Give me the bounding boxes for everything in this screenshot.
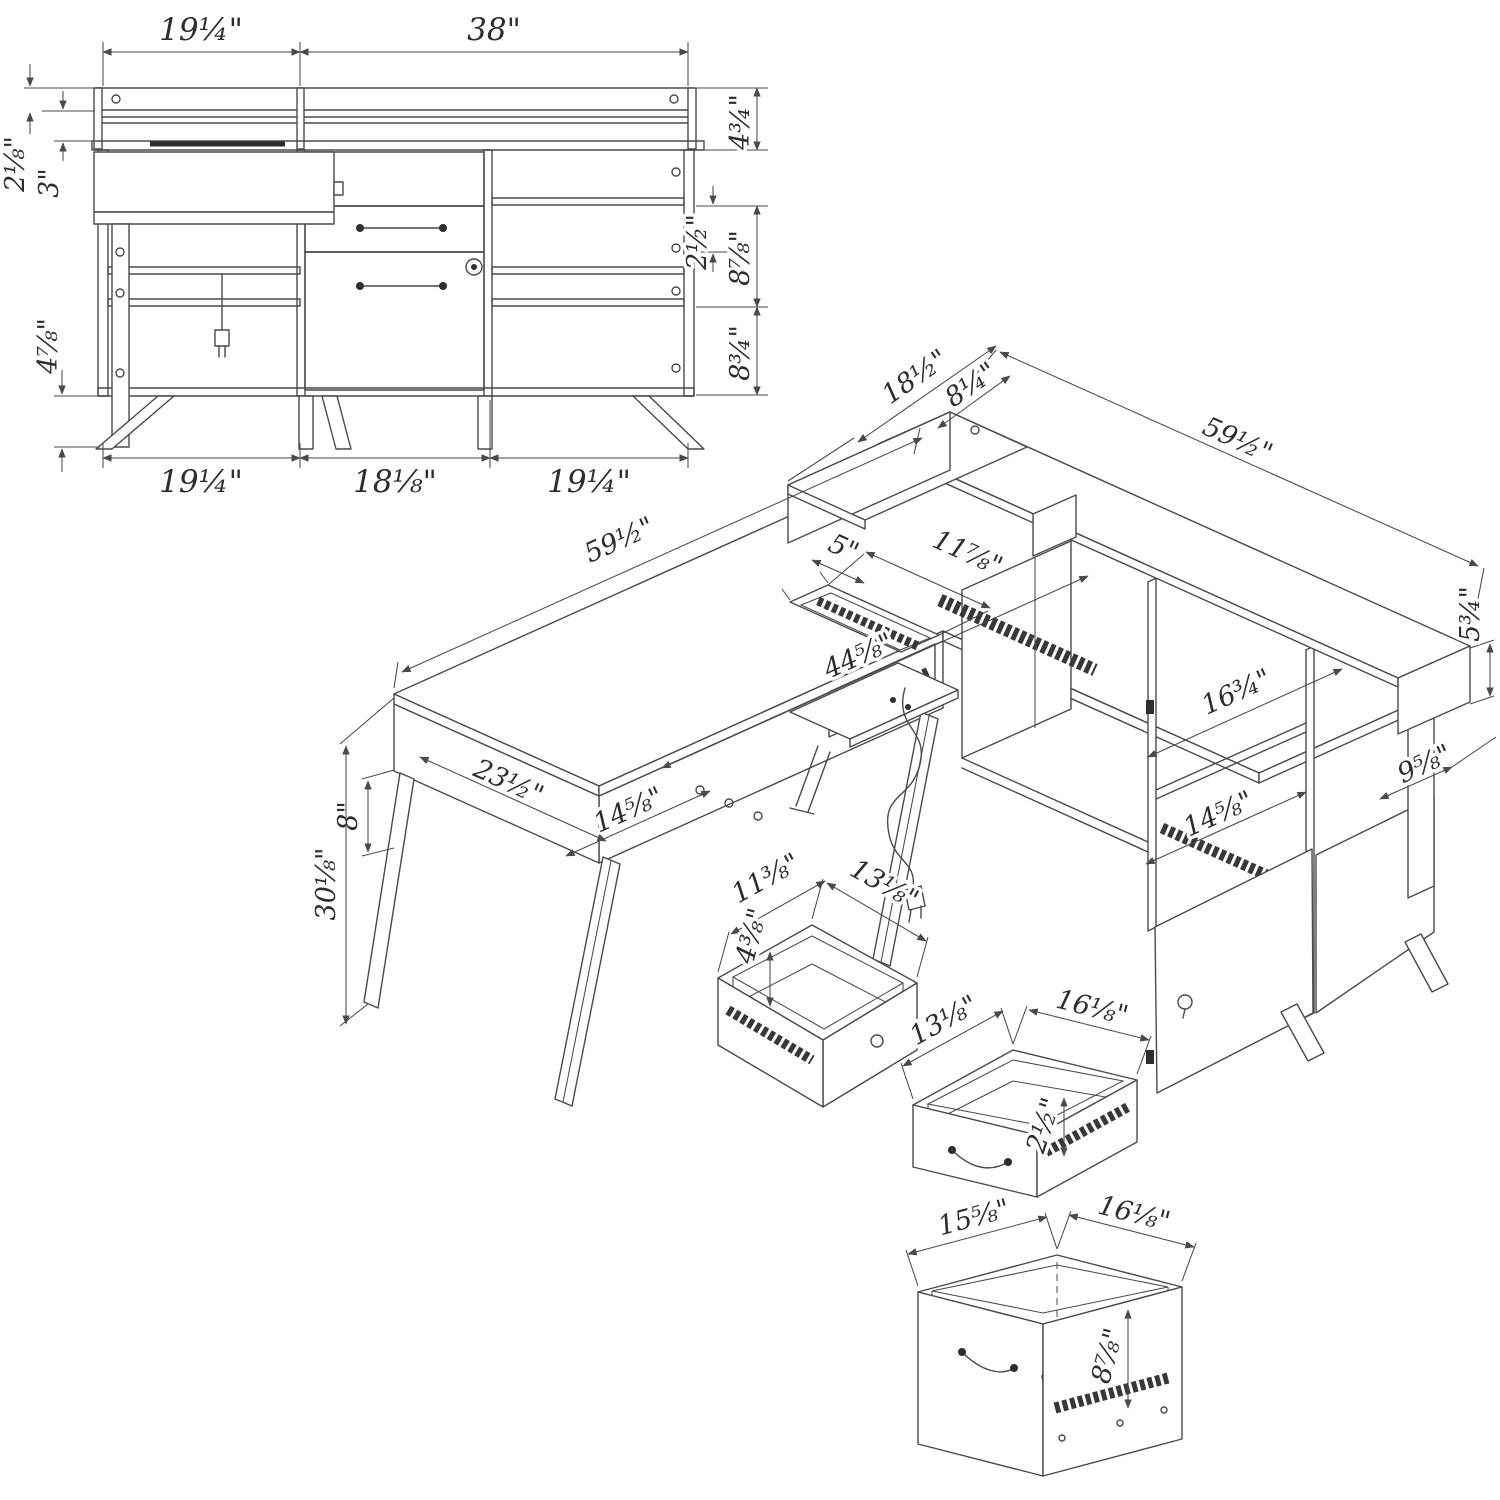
- elevation-left-dimensions: 2⅛" 3" 4⅞": [0, 64, 100, 472]
- drawer-small: 11⅜" 13⅛" 4⅜": [718, 847, 928, 1107]
- dim-elevation-bottom-left-width: 19¼": [159, 464, 243, 500]
- dim-riser-return-depth: 18½": [876, 343, 954, 410]
- dim-total-height: 30⅛": [311, 848, 342, 921]
- dim-return-length: 59½": [580, 511, 659, 569]
- front-elevation-view: 19¼" 38" 19¼" 18⅛" 19¼" 2⅛": [0, 12, 768, 500]
- dim-elevation-hutch-rail-height: 4¾": [725, 94, 756, 151]
- dim-drawer-file-depth: 15⅝": [935, 1193, 1013, 1242]
- dim-elevation-top-left-width: 19¼": [159, 12, 243, 48]
- dim-elevation-bottom-center-width: 18⅛": [353, 464, 437, 500]
- dim-elevation-leg-clearance: 4⅞": [33, 318, 64, 375]
- desk-assembly-diagram: 19¼" 38" 19¼" 18⅛" 19¼" 2⅛": [0, 0, 1500, 1500]
- dim-drawer-file-width: 16⅛": [1095, 1190, 1173, 1238]
- dim-elevation-rail-board-height: 2⅛": [0, 136, 31, 193]
- drawer-center: 13⅛" 16⅛" 2½": [901, 984, 1151, 1197]
- dim-elevation-lower-section-height: 8¾": [725, 325, 756, 381]
- dim-apron-height: 8": [333, 801, 364, 831]
- elevation-top-dimensions: 19¼" 38": [103, 12, 688, 86]
- dim-drawer-center-width: 16⅛": [1053, 984, 1131, 1032]
- elevation-pulled-drawer: [94, 152, 343, 224]
- dim-drawer-small-depth: 11⅜": [726, 847, 805, 909]
- dim-elevation-bottom-right-width: 19¼": [547, 464, 631, 500]
- dim-elevation-middle-section-height: 8⅞": [725, 230, 756, 286]
- dim-elevation-top-right-width: 38": [467, 12, 521, 48]
- drawer-file: 15⅝" 16⅛" 8⅞": [906, 1190, 1196, 1476]
- dim-elevation-small-drawer-height: 2½": [682, 214, 713, 271]
- elevation-right-shelves: [492, 168, 684, 372]
- iso-partition-2: [1148, 578, 1156, 931]
- power-cord-icon: [215, 274, 229, 357]
- dim-riser-length: 59½": [1198, 411, 1277, 469]
- iso-cabinet-foot: [1405, 934, 1448, 992]
- dim-right-cubby-width: 14⅝": [1179, 785, 1258, 843]
- elevation-bottom-dimensions: 19¼" 18⅛" 19¼": [103, 400, 688, 500]
- elevation-legs: [96, 396, 704, 449]
- blueprint-canvas: 19¼" 38" 19¼" 18⅛" 19¼" 2⅛": [0, 0, 1500, 1500]
- elevation-hutch-rail: [94, 88, 696, 149]
- isometric-exploded-view: 59½" 18½" 8¼" 5¾" 59½" 5" 11⅞" 4: [311, 343, 1496, 1476]
- dim-riser-end-height: 5¾": [1455, 586, 1486, 642]
- dim-elevation-rail-gap-height: 3": [34, 168, 65, 198]
